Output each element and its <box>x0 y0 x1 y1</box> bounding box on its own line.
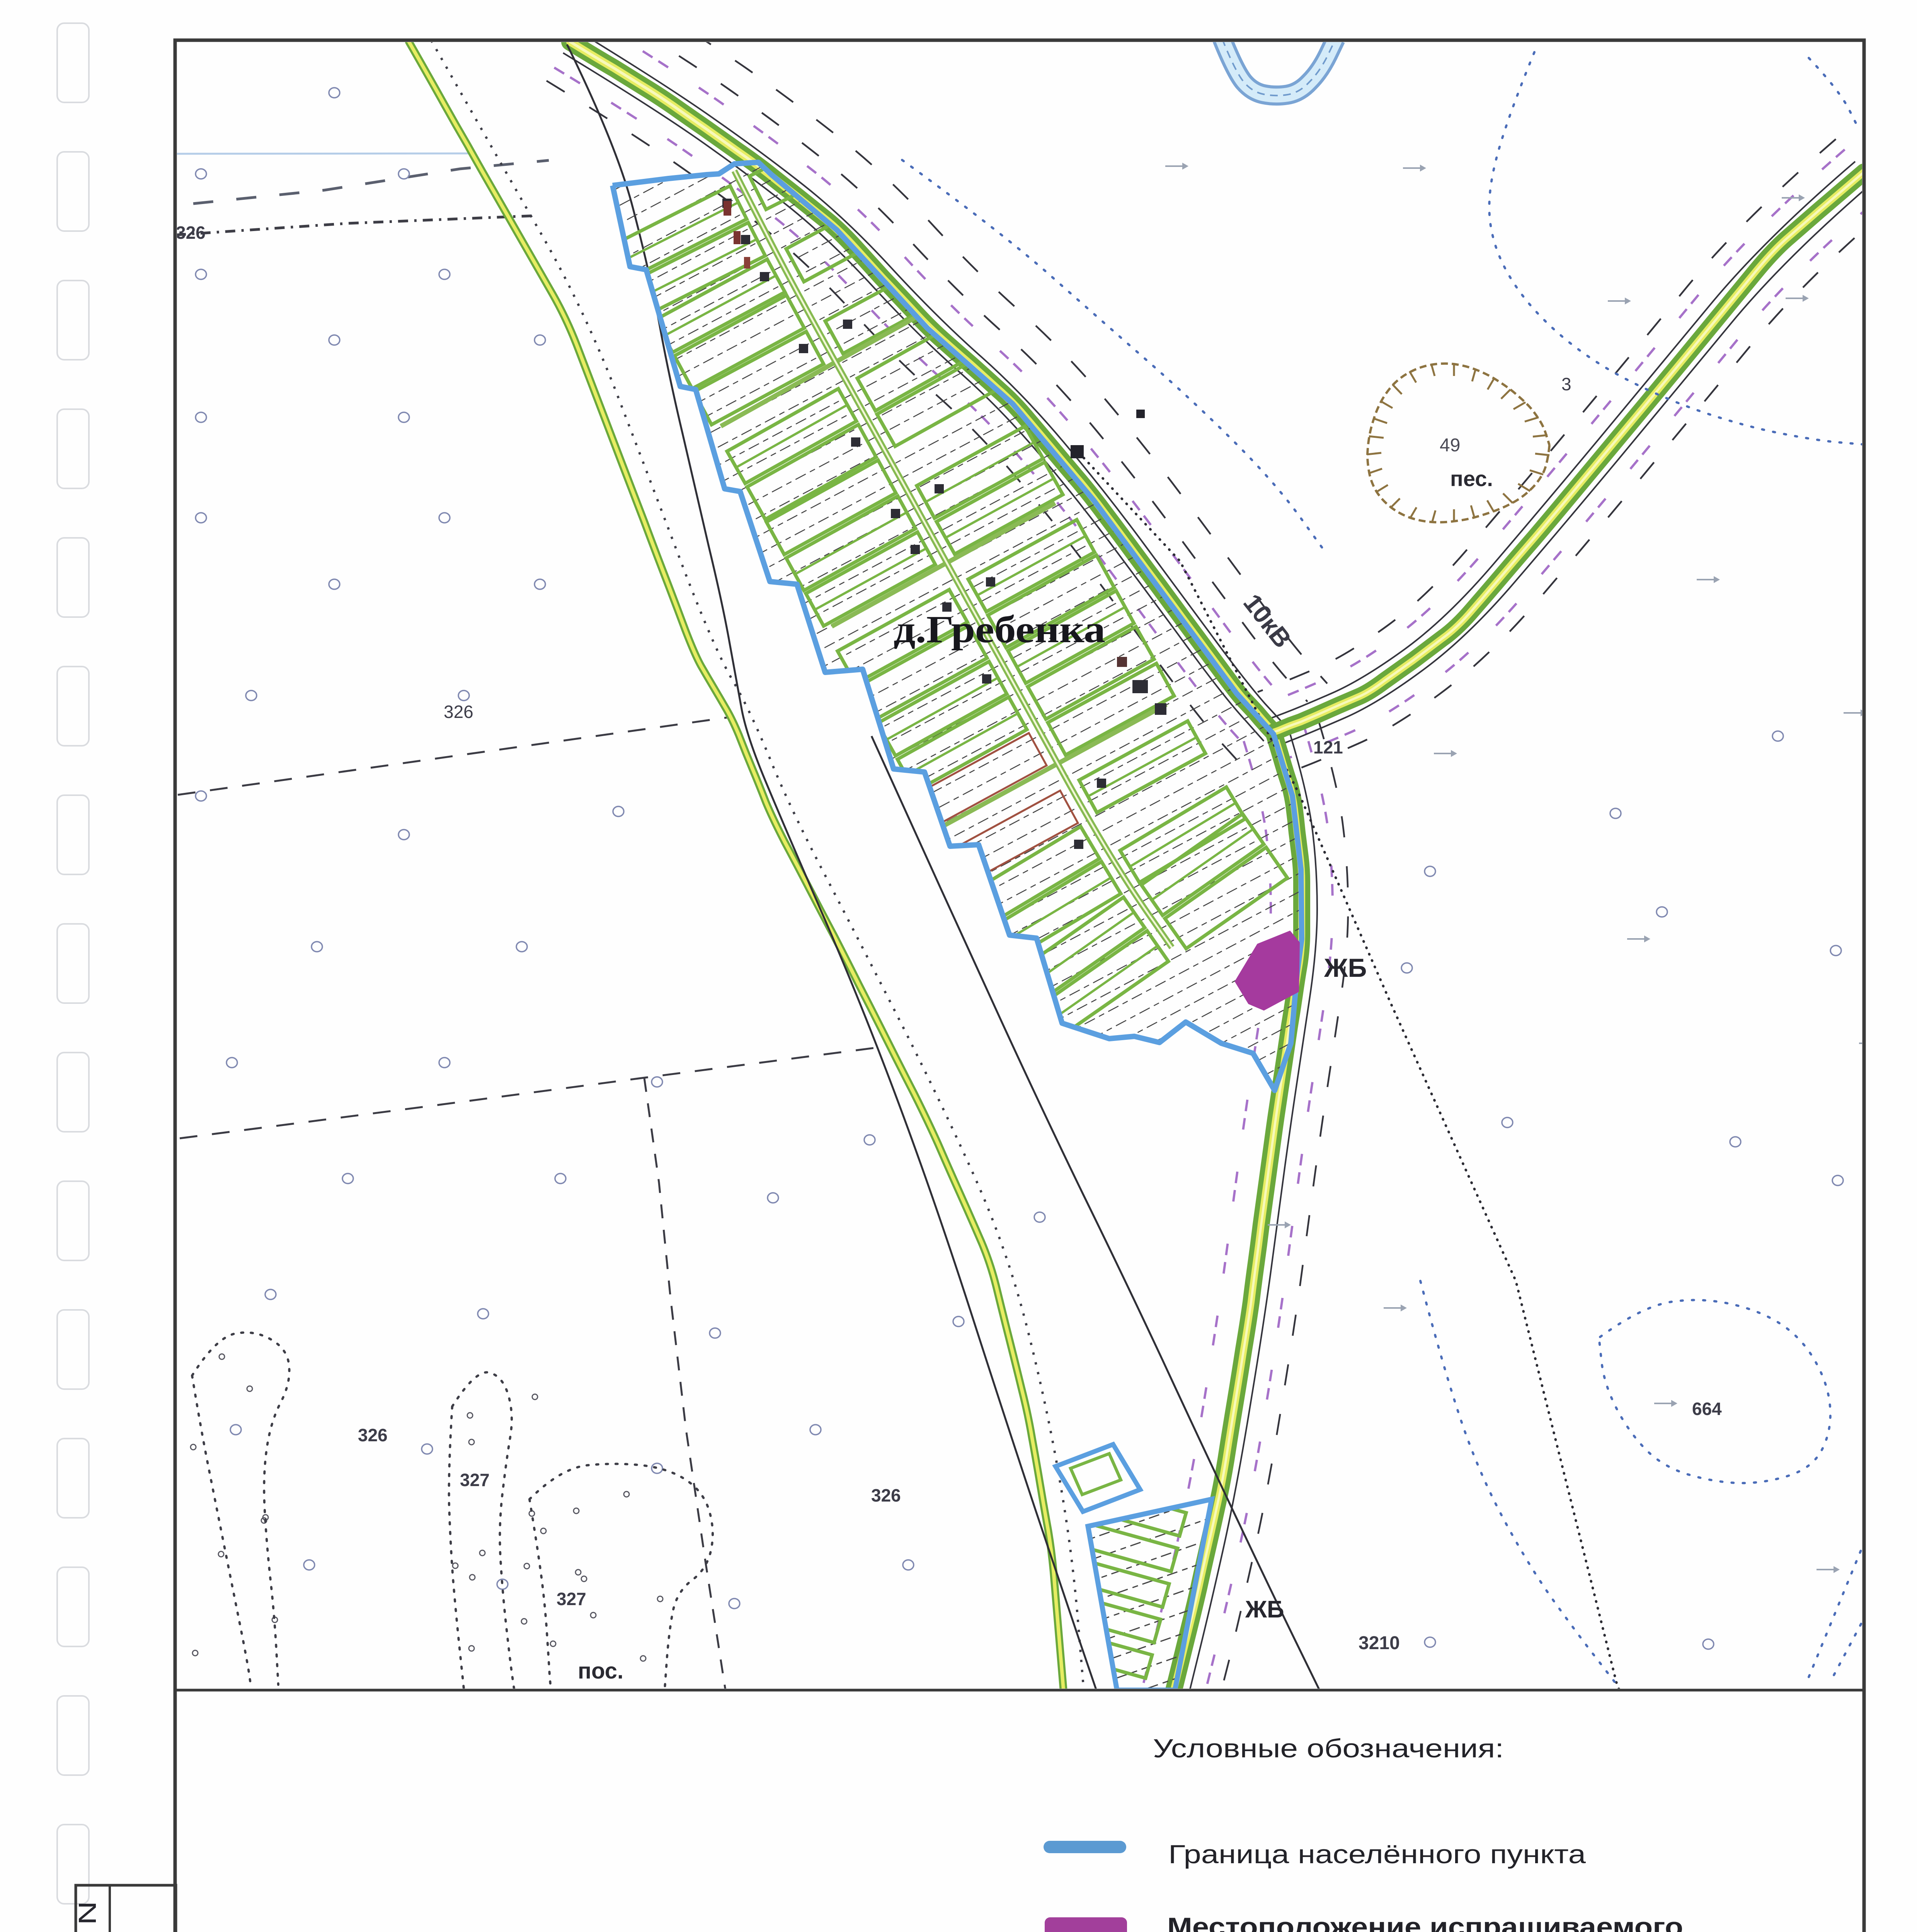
svg-text:326: 326 <box>871 1485 901 1505</box>
svg-text:Условные обозначения:: Условные обозначения: <box>1153 1734 1504 1763</box>
svg-text:327: 327 <box>460 1470 490 1490</box>
svg-text:Местоположение испрашиваемого: Местоположение испрашиваемого <box>1167 1912 1683 1932</box>
svg-text:327: 327 <box>557 1589 586 1609</box>
svg-text:326: 326 <box>444 702 473 722</box>
svg-text:пос.: пос. <box>578 1658 623 1684</box>
svg-text:326: 326 <box>358 1425 388 1445</box>
svg-text:д.Гребенка: д.Гребенка <box>894 608 1105 651</box>
svg-text:49: 49 <box>1440 435 1460 456</box>
svg-text:664: 664 <box>1692 1399 1722 1419</box>
svg-text:пес.: пес. <box>1450 466 1493 491</box>
svg-text:3210: 3210 <box>1359 1633 1400 1653</box>
svg-text:Граница населённого пункта: Граница населённого пункта <box>1168 1840 1586 1869</box>
svg-text:Взам. инв. N: Взам. инв. N <box>73 1901 101 1932</box>
svg-text:121: 121 <box>1313 737 1343 757</box>
svg-text:ЖБ: ЖБ <box>1245 1596 1284 1623</box>
svg-text:3: 3 <box>1561 374 1571 394</box>
svg-text:ЖБ: ЖБ <box>1324 953 1367 983</box>
svg-text:326: 326 <box>176 223 206 243</box>
